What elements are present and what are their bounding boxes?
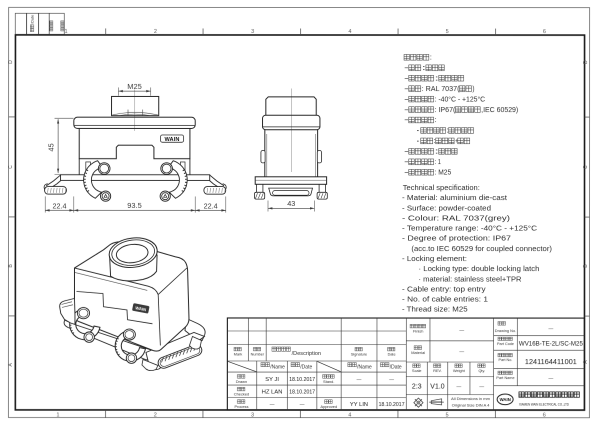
svg-text:/Date: /Date bbox=[390, 364, 402, 370]
svg-text:Process: Process bbox=[234, 404, 248, 409]
svg-text:43: 43 bbox=[287, 199, 295, 208]
svg-text:2: 2 bbox=[154, 29, 157, 35]
svg-text:- Temperature range: -40°C - +: - Temperature range: -40°C - +125°C bbox=[402, 225, 537, 233]
svg-text:: RAL 7037(: : RAL 7037( bbox=[422, 86, 460, 93]
svg-text::: : bbox=[435, 117, 437, 124]
svg-text:Scale: Scale bbox=[412, 369, 422, 373]
svg-text:Part Name: Part Name bbox=[496, 376, 514, 380]
svg-text:: IP67(: : IP67( bbox=[435, 107, 456, 114]
svg-text:·: · bbox=[415, 138, 421, 145]
svg-text:- Material: aluminium die-cast: - Material: aluminium die-cast bbox=[402, 195, 507, 202]
svg-text:M25: M25 bbox=[127, 82, 141, 91]
svg-text:HZ LAN: HZ LAN bbox=[262, 390, 283, 396]
svg-text:Approved: Approved bbox=[320, 404, 337, 409]
svg-text:Technical specification:: Technical specification: bbox=[403, 185, 480, 192]
svg-text:45: 45 bbox=[47, 143, 56, 151]
svg-text:5: 5 bbox=[446, 29, 449, 35]
svg-text:2: 2 bbox=[154, 412, 157, 418]
svg-text:- Degree of protection: IP67: - Degree of protection: IP67 bbox=[402, 236, 511, 243]
svg-text:WAIN: WAIN bbox=[500, 397, 511, 402]
svg-text::: : bbox=[447, 128, 449, 135]
svg-text:): ) bbox=[472, 86, 474, 93]
svg-text:—: — bbox=[456, 385, 461, 390]
svg-text:: M25: : M25 bbox=[435, 169, 452, 176]
svg-text:18.10.2017: 18.10.2017 bbox=[289, 390, 315, 396]
svg-text:—: — bbox=[270, 403, 275, 408]
svg-text:2:3: 2:3 bbox=[412, 384, 422, 391]
svg-text:—: — bbox=[389, 378, 394, 383]
svg-text:- Thread size: M25: - Thread size: M25 bbox=[402, 307, 468, 314]
svg-text:,IEC 60529): ,IEC 60529) bbox=[481, 107, 518, 114]
svg-text:—: — bbox=[479, 385, 484, 390]
svg-text:18.10.2017: 18.10.2017 bbox=[289, 377, 315, 383]
svg-text:—: — bbox=[300, 403, 305, 408]
svg-text:WAIN: WAIN bbox=[165, 137, 180, 143]
svg-text::: : bbox=[434, 138, 436, 145]
svg-text::: : bbox=[430, 55, 432, 62]
svg-text:· Locking type: double locking: · Locking type: double locking latch bbox=[418, 266, 539, 273]
svg-text:1241164411001: 1241164411001 bbox=[525, 357, 577, 366]
svg-text:D: D bbox=[8, 60, 14, 64]
svg-text:Qty.: Qty. bbox=[478, 369, 485, 373]
svg-text:Drawing No.: Drawing No. bbox=[495, 328, 516, 333]
svg-text:/Name: /Name bbox=[357, 364, 372, 370]
svg-text:Part No.: Part No. bbox=[498, 358, 512, 362]
svg-text:3: 3 bbox=[251, 412, 254, 418]
svg-text:—: — bbox=[548, 376, 553, 381]
svg-text:1: 1 bbox=[56, 412, 59, 418]
svg-text:—: — bbox=[357, 378, 362, 383]
svg-text:All Dimensions in mm: All Dimensions in mm bbox=[451, 396, 491, 401]
svg-text:+: + bbox=[455, 138, 458, 145]
svg-text:—: — bbox=[548, 327, 553, 332]
svg-text:C: C bbox=[583, 165, 589, 169]
svg-text:- No. of cable entries: 1: - No. of cable entries: 1 bbox=[402, 297, 488, 304]
svg-text:- Surface: powder-coated: - Surface: powder-coated bbox=[402, 205, 491, 212]
svg-text:YY LIN: YY LIN bbox=[350, 402, 368, 408]
svg-text:6: 6 bbox=[543, 412, 546, 418]
svg-text:18.10.2017: 18.10.2017 bbox=[379, 402, 405, 408]
svg-text:/Date: /Date bbox=[31, 15, 35, 24]
svg-text:/Date: /Date bbox=[300, 364, 312, 370]
svg-text:: -40°C - +125°C: : -40°C - +125°C bbox=[435, 95, 486, 103]
svg-text:· material: stainless steel+TP: · material: stainless steel+TPR bbox=[418, 276, 521, 283]
svg-text:D: D bbox=[583, 60, 589, 64]
svg-text:- Cable entry: top entry: - Cable entry: top entry bbox=[402, 286, 486, 293]
svg-text:V1.0: V1.0 bbox=[430, 384, 445, 391]
svg-text:Material: Material bbox=[411, 350, 425, 355]
svg-text:Part Code: Part Code bbox=[497, 342, 514, 346]
svg-text:93.5: 93.5 bbox=[127, 201, 141, 210]
svg-text::: : bbox=[422, 65, 426, 72]
svg-text:5: 5 bbox=[446, 412, 449, 418]
svg-text:(acc.to IEC 60529 for coupled: (acc.to IEC 60529 for coupled connector) bbox=[411, 246, 552, 253]
svg-text:WV16B-TE-2L/SC-M25: WV16B-TE-2L/SC-M25 bbox=[519, 341, 584, 347]
svg-text:6: 6 bbox=[543, 29, 546, 35]
svg-text:—: — bbox=[459, 329, 464, 334]
svg-text:SY JI: SY JI bbox=[265, 377, 279, 383]
svg-text:4: 4 bbox=[348, 412, 351, 418]
svg-text:/Description: /Description bbox=[292, 351, 322, 357]
svg-text:: 1: : 1 bbox=[435, 159, 441, 166]
svg-text:Weight: Weight bbox=[453, 369, 466, 373]
svg-text:Number: Number bbox=[251, 352, 265, 356]
svg-text:XIAMEN WAIN ELECTRICAL CO.,LTD: XIAMEN WAIN ELECTRICAL CO.,LTD bbox=[519, 402, 569, 406]
svg-text:Date: Date bbox=[388, 352, 396, 356]
svg-text:Stand.: Stand. bbox=[323, 379, 334, 384]
svg-text:1: 1 bbox=[65, 29, 68, 35]
svg-text:Checked: Checked bbox=[234, 391, 249, 396]
svg-text:Signature: Signature bbox=[351, 352, 367, 356]
svg-text:22.4: 22.4 bbox=[53, 201, 67, 210]
svg-text:·: · bbox=[415, 128, 421, 135]
svg-text:- Locking element:: - Locking element: bbox=[402, 256, 467, 263]
svg-text:Original Size DIN A 4: Original Size DIN A 4 bbox=[452, 403, 491, 408]
svg-text::: : bbox=[435, 75, 439, 82]
svg-text:C: C bbox=[8, 165, 14, 169]
svg-text:3: 3 bbox=[251, 29, 254, 35]
svg-text:22.4: 22.4 bbox=[204, 201, 218, 210]
svg-text:- Colour: RAL 7037(grey): - Colour: RAL 7037(grey) bbox=[402, 215, 510, 222]
svg-text:Finish: Finish bbox=[413, 329, 423, 334]
svg-text:Drawn: Drawn bbox=[236, 379, 247, 384]
svg-text:REV.: REV. bbox=[433, 369, 442, 373]
svg-text::: : bbox=[435, 149, 439, 156]
svg-text:4: 4 bbox=[348, 29, 351, 35]
svg-text:—: — bbox=[459, 350, 464, 355]
svg-text:/Name: /Name bbox=[270, 364, 285, 370]
svg-text:Mark: Mark bbox=[234, 352, 243, 356]
